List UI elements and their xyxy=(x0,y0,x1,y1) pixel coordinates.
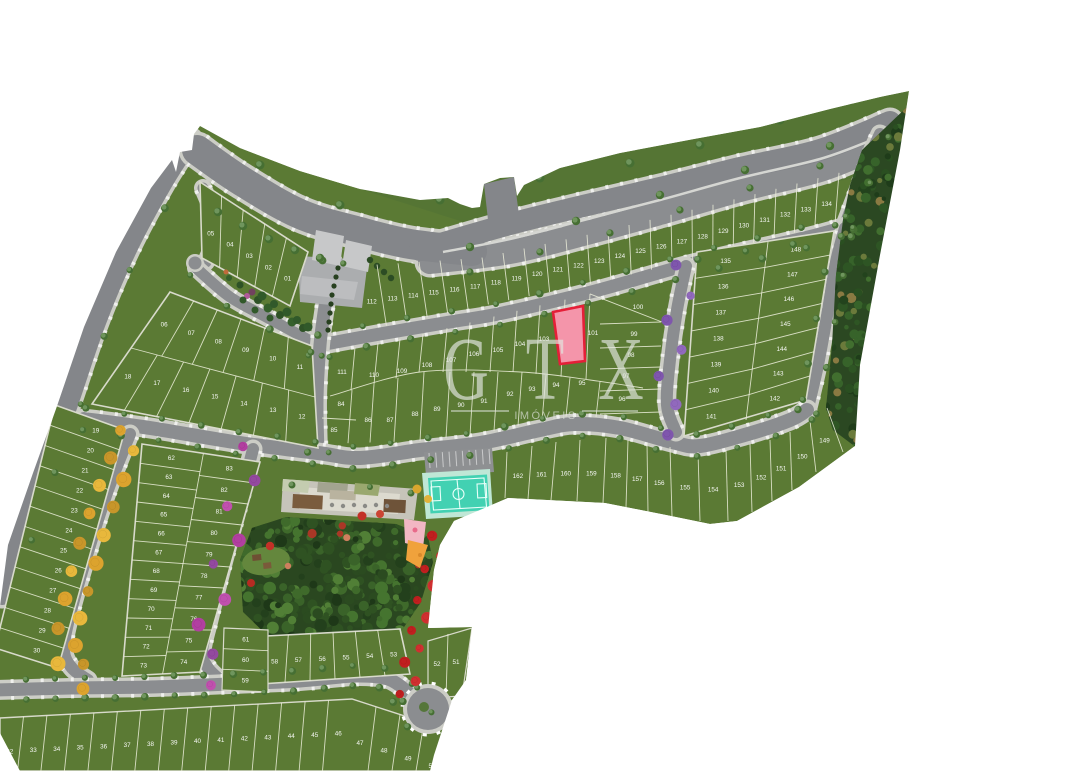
svg-text:147: 147 xyxy=(787,271,798,278)
svg-text:52: 52 xyxy=(433,661,441,668)
svg-text:118: 118 xyxy=(491,280,502,287)
svg-text:157: 157 xyxy=(632,476,643,483)
svg-text:48: 48 xyxy=(380,748,388,755)
svg-text:132: 132 xyxy=(780,212,791,219)
svg-text:145: 145 xyxy=(780,321,791,328)
svg-text:11: 11 xyxy=(297,364,304,371)
svg-text:54: 54 xyxy=(366,653,374,660)
svg-text:06: 06 xyxy=(161,321,169,328)
svg-text:41: 41 xyxy=(217,737,225,744)
svg-text:100: 100 xyxy=(633,304,644,311)
svg-text:66: 66 xyxy=(158,531,166,538)
svg-text:82: 82 xyxy=(221,487,229,494)
svg-text:83: 83 xyxy=(226,465,234,472)
svg-text:25: 25 xyxy=(60,547,68,554)
svg-text:95: 95 xyxy=(578,380,586,387)
svg-text:23: 23 xyxy=(71,508,79,515)
svg-text:33: 33 xyxy=(30,747,38,754)
svg-text:116: 116 xyxy=(449,286,460,293)
svg-text:89: 89 xyxy=(433,406,441,413)
svg-text:105: 105 xyxy=(493,347,504,354)
svg-text:131: 131 xyxy=(759,217,770,224)
svg-text:126: 126 xyxy=(656,243,667,250)
svg-text:101: 101 xyxy=(588,330,599,337)
svg-text:160: 160 xyxy=(561,471,572,478)
svg-text:65: 65 xyxy=(160,512,168,519)
svg-text:22: 22 xyxy=(76,488,84,495)
svg-text:158: 158 xyxy=(610,472,621,479)
svg-text:27: 27 xyxy=(49,587,57,594)
svg-text:28: 28 xyxy=(44,607,52,614)
svg-text:87: 87 xyxy=(386,417,394,424)
svg-text:138: 138 xyxy=(713,336,724,343)
svg-text:122: 122 xyxy=(573,262,584,269)
svg-text:112: 112 xyxy=(367,299,378,306)
svg-text:56: 56 xyxy=(319,656,327,663)
svg-text:21: 21 xyxy=(81,468,89,475)
svg-text:161: 161 xyxy=(536,472,547,479)
svg-text:134: 134 xyxy=(821,201,832,208)
svg-text:119: 119 xyxy=(511,275,522,282)
svg-text:86: 86 xyxy=(364,417,372,424)
svg-text:57: 57 xyxy=(295,657,303,664)
svg-text:154: 154 xyxy=(708,487,719,494)
svg-text:42: 42 xyxy=(241,736,249,743)
svg-text:38: 38 xyxy=(147,741,155,748)
svg-text:62: 62 xyxy=(168,455,176,462)
svg-text:108: 108 xyxy=(422,362,433,369)
svg-text:159: 159 xyxy=(586,471,597,478)
svg-text:137: 137 xyxy=(716,310,727,317)
svg-text:150: 150 xyxy=(797,454,808,461)
svg-text:79: 79 xyxy=(205,552,213,559)
svg-text:142: 142 xyxy=(770,396,781,403)
svg-text:17: 17 xyxy=(153,380,161,387)
svg-text:77: 77 xyxy=(195,595,203,602)
svg-text:121: 121 xyxy=(553,267,564,274)
svg-text:92: 92 xyxy=(506,391,514,398)
svg-text:74: 74 xyxy=(180,659,188,666)
svg-text:35: 35 xyxy=(77,745,85,752)
svg-text:81: 81 xyxy=(216,509,224,516)
svg-text:19: 19 xyxy=(92,428,100,435)
svg-text:T: T xyxy=(526,319,564,419)
svg-text:88: 88 xyxy=(411,411,419,418)
svg-text:14: 14 xyxy=(240,400,248,407)
svg-text:155: 155 xyxy=(680,484,691,491)
svg-text:128: 128 xyxy=(697,233,708,240)
svg-text:13: 13 xyxy=(269,407,277,414)
svg-text:104: 104 xyxy=(515,341,526,348)
svg-text:01: 01 xyxy=(284,276,292,283)
svg-text:80: 80 xyxy=(210,530,218,537)
svg-text:02: 02 xyxy=(265,264,273,271)
svg-text:46: 46 xyxy=(335,731,343,738)
svg-text:70: 70 xyxy=(148,606,156,613)
svg-text:149: 149 xyxy=(819,438,830,445)
svg-text:58: 58 xyxy=(271,659,279,666)
svg-text:60: 60 xyxy=(242,657,250,664)
svg-text:111: 111 xyxy=(337,369,347,376)
svg-text:110: 110 xyxy=(369,372,380,379)
svg-text:124: 124 xyxy=(615,253,626,260)
svg-text:139: 139 xyxy=(711,362,722,369)
svg-text:20: 20 xyxy=(87,448,95,455)
svg-text:144: 144 xyxy=(777,346,788,353)
svg-text:16: 16 xyxy=(182,387,190,394)
svg-text:44: 44 xyxy=(288,733,296,740)
svg-text:61: 61 xyxy=(242,636,250,643)
svg-text:73: 73 xyxy=(140,663,148,670)
svg-text:64: 64 xyxy=(163,493,171,500)
svg-text:75: 75 xyxy=(185,638,193,645)
svg-text:04: 04 xyxy=(226,242,234,249)
svg-text:53: 53 xyxy=(390,652,398,659)
svg-text:59: 59 xyxy=(242,678,250,685)
svg-text:69: 69 xyxy=(150,587,158,594)
svg-text:125: 125 xyxy=(635,248,646,255)
svg-text:114: 114 xyxy=(408,293,419,300)
svg-text:24: 24 xyxy=(65,528,73,535)
svg-text:X: X xyxy=(598,319,643,419)
svg-text:115: 115 xyxy=(429,290,440,297)
svg-text:08: 08 xyxy=(215,339,223,346)
svg-text:37: 37 xyxy=(124,742,132,749)
svg-text:153: 153 xyxy=(734,482,745,489)
svg-text:127: 127 xyxy=(677,238,688,245)
svg-text:39: 39 xyxy=(170,740,178,747)
svg-text:143: 143 xyxy=(773,371,784,378)
svg-text:10: 10 xyxy=(269,356,277,363)
svg-text:152: 152 xyxy=(756,475,767,482)
svg-text:03: 03 xyxy=(246,253,254,260)
svg-text:36: 36 xyxy=(100,743,108,750)
svg-text:15: 15 xyxy=(211,394,219,401)
svg-text:45: 45 xyxy=(311,732,319,739)
svg-text:12: 12 xyxy=(298,414,306,421)
svg-text:156: 156 xyxy=(654,480,665,487)
svg-text:34: 34 xyxy=(53,746,61,753)
svg-text:63: 63 xyxy=(165,474,173,481)
svg-text:120: 120 xyxy=(532,271,543,278)
svg-text:78: 78 xyxy=(200,573,208,580)
svg-text:162: 162 xyxy=(513,473,524,480)
svg-text:146: 146 xyxy=(784,296,795,303)
svg-text:141: 141 xyxy=(706,413,717,420)
svg-text:43: 43 xyxy=(264,734,272,741)
svg-text:30: 30 xyxy=(33,647,41,654)
svg-text:113: 113 xyxy=(387,296,398,303)
svg-text:47: 47 xyxy=(356,740,364,747)
svg-text:117: 117 xyxy=(470,283,481,290)
svg-text:135: 135 xyxy=(720,258,731,265)
svg-text:26: 26 xyxy=(55,567,63,574)
svg-text:09: 09 xyxy=(242,347,250,354)
svg-text:71: 71 xyxy=(145,625,153,632)
svg-text:109: 109 xyxy=(397,368,408,375)
svg-text:40: 40 xyxy=(194,738,202,745)
svg-text:67: 67 xyxy=(155,549,163,556)
svg-text:51: 51 xyxy=(452,659,460,666)
svg-text:123: 123 xyxy=(594,258,605,265)
svg-text:G: G xyxy=(443,319,488,419)
svg-text:IMÓVEIS: IMÓVEIS xyxy=(514,409,577,422)
svg-text:133: 133 xyxy=(801,206,812,213)
svg-text:130: 130 xyxy=(739,223,750,230)
svg-text:29: 29 xyxy=(39,627,47,634)
svg-text:18: 18 xyxy=(124,374,132,381)
svg-text:07: 07 xyxy=(188,330,196,337)
svg-text:136: 136 xyxy=(718,284,729,291)
svg-text:151: 151 xyxy=(776,466,787,473)
svg-text:140: 140 xyxy=(708,387,719,394)
svg-text:85: 85 xyxy=(330,427,338,434)
svg-text:49: 49 xyxy=(404,755,412,762)
svg-text:129: 129 xyxy=(718,228,729,235)
svg-text:72: 72 xyxy=(143,644,151,651)
svg-text:68: 68 xyxy=(153,568,161,575)
svg-text:05: 05 xyxy=(207,230,215,237)
svg-text:55: 55 xyxy=(342,654,350,661)
svg-text:84: 84 xyxy=(337,401,345,408)
